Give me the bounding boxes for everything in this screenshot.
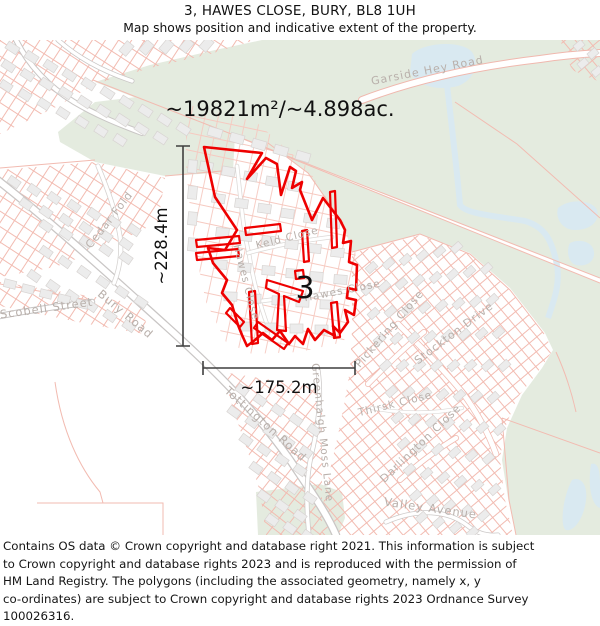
map-canvas: Garside Hey Road Cedar Fold Scobell Stre… <box>0 40 600 535</box>
page-subtitle: Map shows position and indicative extent… <box>0 19 600 35</box>
footer-line: HM Land Registry. The polygons (includin… <box>3 573 596 591</box>
footer-line: Contains OS data © Crown copyright and d… <box>3 538 596 556</box>
copyright-footer: Contains OS data © Crown copyright and d… <box>0 535 600 625</box>
title-block: 3, HAWES CLOSE, BURY, BL8 1UH Map shows … <box>0 0 600 40</box>
height-dimension-label: ~228.4m <box>152 207 171 284</box>
map-container: Garside Hey Road Cedar Fold Scobell Stre… <box>0 40 600 535</box>
footer-line: to Crown copyright and database rights 2… <box>3 556 596 574</box>
footer-line: 100026316. <box>3 608 596 626</box>
width-dimension-label: ~175.2m <box>240 378 317 397</box>
footer-line: co-ordinates) are subject to Crown copyr… <box>3 591 596 609</box>
page-title: 3, HAWES CLOSE, BURY, BL8 1UH <box>0 0 600 19</box>
plot-number: 3 <box>295 271 314 306</box>
area-label: ~19821m²/~4.898ac. <box>165 97 394 121</box>
